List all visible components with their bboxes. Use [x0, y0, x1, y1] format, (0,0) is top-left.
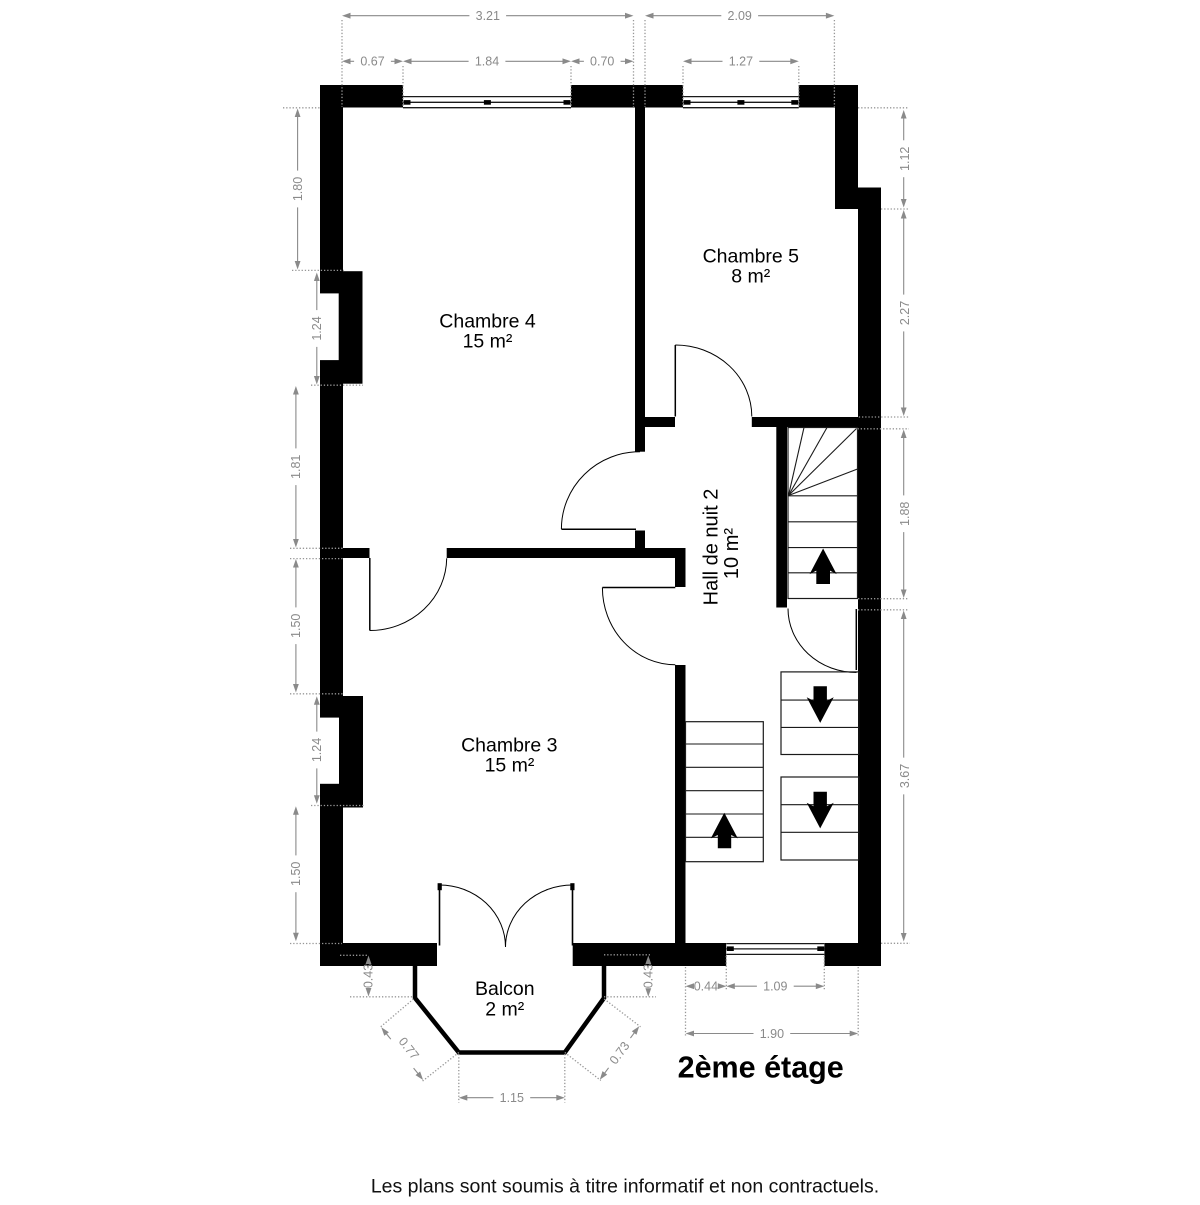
svg-text:3.67: 3.67 — [898, 764, 912, 788]
svg-text:1.24: 1.24 — [310, 738, 324, 762]
svg-text:15 m²: 15 m² — [485, 755, 535, 777]
svg-text:1.50: 1.50 — [289, 614, 303, 638]
svg-text:1.15: 1.15 — [500, 1091, 524, 1105]
svg-text:15 m²: 15 m² — [463, 331, 513, 353]
svg-text:Chambre 4: Chambre 4 — [439, 311, 536, 333]
svg-text:1.12: 1.12 — [898, 147, 912, 171]
svg-text:1.88: 1.88 — [898, 502, 912, 526]
svg-text:2.27: 2.27 — [898, 301, 912, 325]
svg-text:0.43: 0.43 — [362, 964, 376, 988]
svg-text:0.43: 0.43 — [642, 964, 656, 988]
svg-text:1.27: 1.27 — [729, 55, 753, 69]
svg-text:1.80: 1.80 — [291, 177, 305, 201]
svg-text:Les plans sont soumis à titre: Les plans sont soumis à titre informatif… — [371, 1176, 879, 1198]
svg-text:Chambre 5: Chambre 5 — [703, 246, 800, 268]
svg-text:2ème étage: 2ème étage — [678, 1051, 844, 1085]
svg-text:1.09: 1.09 — [763, 980, 787, 994]
svg-text:Hall de nuit 2: Hall de nuit 2 — [701, 489, 723, 606]
svg-text:8 m²: 8 m² — [731, 266, 771, 288]
svg-text:1.81: 1.81 — [289, 455, 303, 479]
svg-text:Balcon: Balcon — [475, 978, 535, 1000]
svg-text:1.24: 1.24 — [310, 316, 324, 340]
svg-text:2 m²: 2 m² — [485, 998, 525, 1020]
svg-text:1.90: 1.90 — [760, 1027, 784, 1041]
svg-text:1.50: 1.50 — [289, 862, 303, 886]
svg-text:0.67: 0.67 — [360, 55, 384, 69]
svg-text:10 m²: 10 m² — [721, 528, 743, 579]
svg-text:3.21: 3.21 — [476, 9, 500, 23]
svg-text:Chambre 3: Chambre 3 — [461, 735, 557, 757]
svg-text:1.84: 1.84 — [475, 55, 499, 69]
svg-text:0.70: 0.70 — [590, 55, 614, 69]
svg-text:0.44: 0.44 — [694, 980, 718, 994]
svg-text:2.09: 2.09 — [728, 9, 752, 23]
